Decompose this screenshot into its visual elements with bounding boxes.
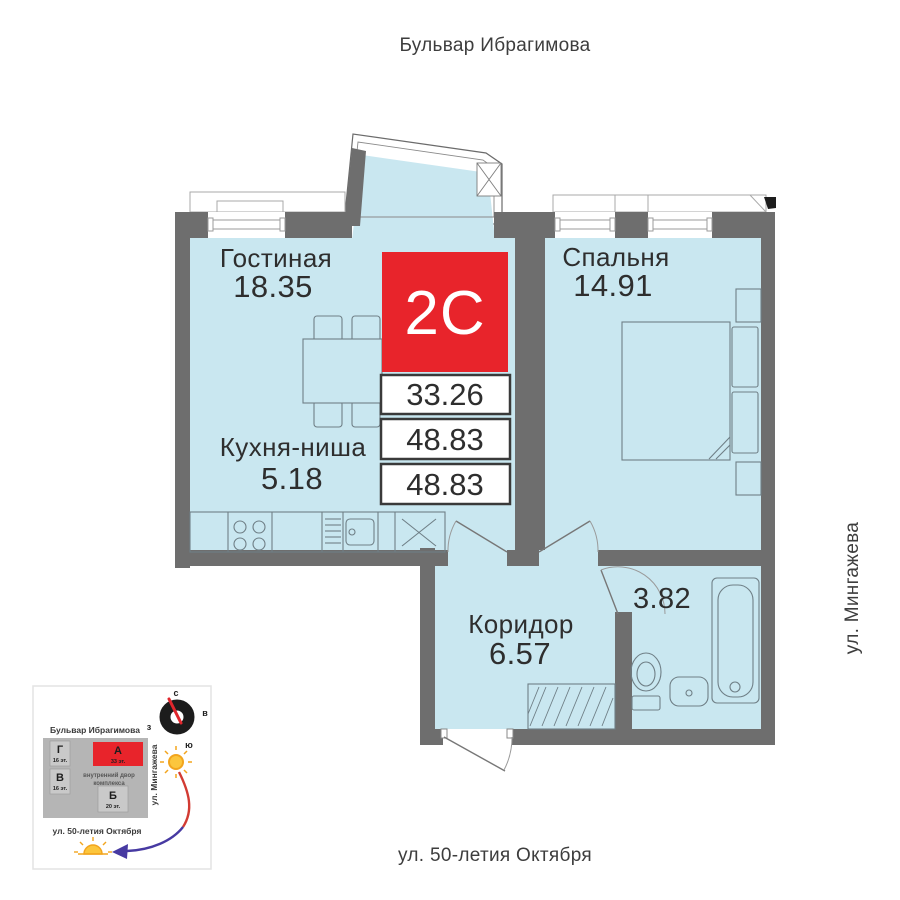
window-bedroom1-icon <box>555 212 615 238</box>
balcony-right-icon <box>553 195 766 212</box>
building-b: Б 20 эт. <box>98 786 128 812</box>
street-bottom-label: ул. 50-летия Октября <box>398 845 592 866</box>
corridor-name: Коридор <box>468 609 573 639</box>
unit-type-label: 2С <box>404 279 485 348</box>
kitchen-name: Кухня-ниша <box>220 432 367 462</box>
building-g: Г 16 эт. <box>50 741 70 766</box>
bathroom-area: 3.82 <box>633 583 691 615</box>
street-top-label: Бульвар Ибрагимова <box>399 35 590 56</box>
kitchen-area: 5.18 <box>261 461 323 496</box>
bedroom-area: 14.91 <box>573 268 653 303</box>
minimap-street-bottom: ул. 50-летия Октября <box>53 826 142 836</box>
minimap-street-top: Бульвар Ибрагимова <box>50 725 140 735</box>
wall-living-bedroom <box>515 212 545 550</box>
courtyard-label-1: внутренний двор <box>83 772 135 779</box>
living-area: 18.35 <box>233 269 313 304</box>
compass-south: ю <box>185 740 193 750</box>
unit-area-2: 48.83 <box>406 422 484 457</box>
corridor-area: 6.57 <box>489 636 551 671</box>
minimap-street-right: ул. Мингажева <box>149 744 159 805</box>
floorplan-canvas: 2С 33.26 48.83 48.83 Гостиная 18.35 Спал… <box>0 0 900 900</box>
courtyard-label-2: комплекса <box>93 781 125 787</box>
wall-right <box>761 212 775 745</box>
compass-west: з <box>147 722 152 732</box>
compass-north: с <box>173 688 178 698</box>
unit-badge: 2С 33.26 48.83 48.83 <box>381 252 510 504</box>
building-a-label: А <box>114 745 122 757</box>
building-v: В 16 эт. <box>50 769 70 794</box>
street-right-label: ул. Мингажева <box>842 522 863 654</box>
doorway-bedroom-gap <box>536 548 600 568</box>
floorplan-page: 2С 33.26 48.83 48.83 Гостиная 18.35 Спал… <box>0 0 900 900</box>
wall-bottom <box>512 729 775 745</box>
shaft-x-icon <box>477 163 501 196</box>
wall-left <box>175 212 190 568</box>
compass-east: в <box>202 708 208 718</box>
building-b-floors: 20 эт. <box>106 804 121 810</box>
building-g-floors: 16 эт. <box>53 758 68 764</box>
unit-area-3: 48.83 <box>406 467 484 502</box>
window-living-icon <box>208 212 285 238</box>
building-a-floors: 33 эт. <box>111 759 126 765</box>
minimap: с в з ю Бульвар Ибрагимова Г 16 эт. В 16… <box>33 686 211 869</box>
entrance-door-icon <box>441 729 513 771</box>
doorway-kitchen-gap <box>445 548 510 568</box>
building-a-highlighted: А 33 эт. <box>93 742 143 766</box>
unit-area-1: 33.26 <box>406 377 484 412</box>
building-g-label: Г <box>57 744 64 756</box>
wall-bathroom <box>615 612 632 729</box>
building-v-floors: 16 эт. <box>53 786 68 792</box>
building-v-label: В <box>56 772 64 784</box>
window-bedroom2-icon <box>648 212 712 238</box>
building-b-label: Б <box>109 790 117 802</box>
